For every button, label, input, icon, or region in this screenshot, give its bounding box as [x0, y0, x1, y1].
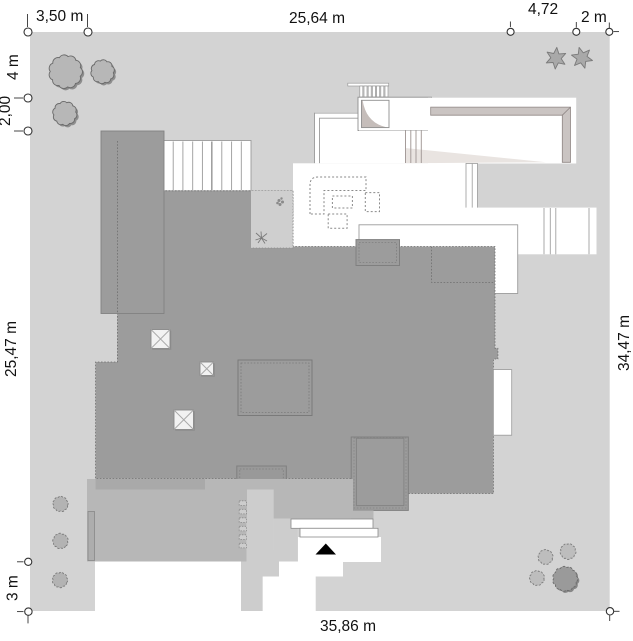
svg-text:25,47 m: 25,47 m — [3, 321, 20, 377]
svg-text:3 m: 3 m — [5, 575, 22, 601]
svg-text:3,50 m: 3,50 m — [36, 8, 83, 25]
svg-text:25,64 m: 25,64 m — [289, 10, 345, 27]
svg-text:4 m: 4 m — [5, 54, 22, 80]
svg-text:2 m: 2 m — [581, 9, 607, 26]
svg-text:4,72: 4,72 — [528, 1, 558, 18]
svg-text:2,00: 2,00 — [0, 95, 14, 126]
svg-text:35,86 m: 35,86 m — [320, 618, 376, 635]
svg-text:34,47 m: 34,47 m — [616, 315, 633, 371]
